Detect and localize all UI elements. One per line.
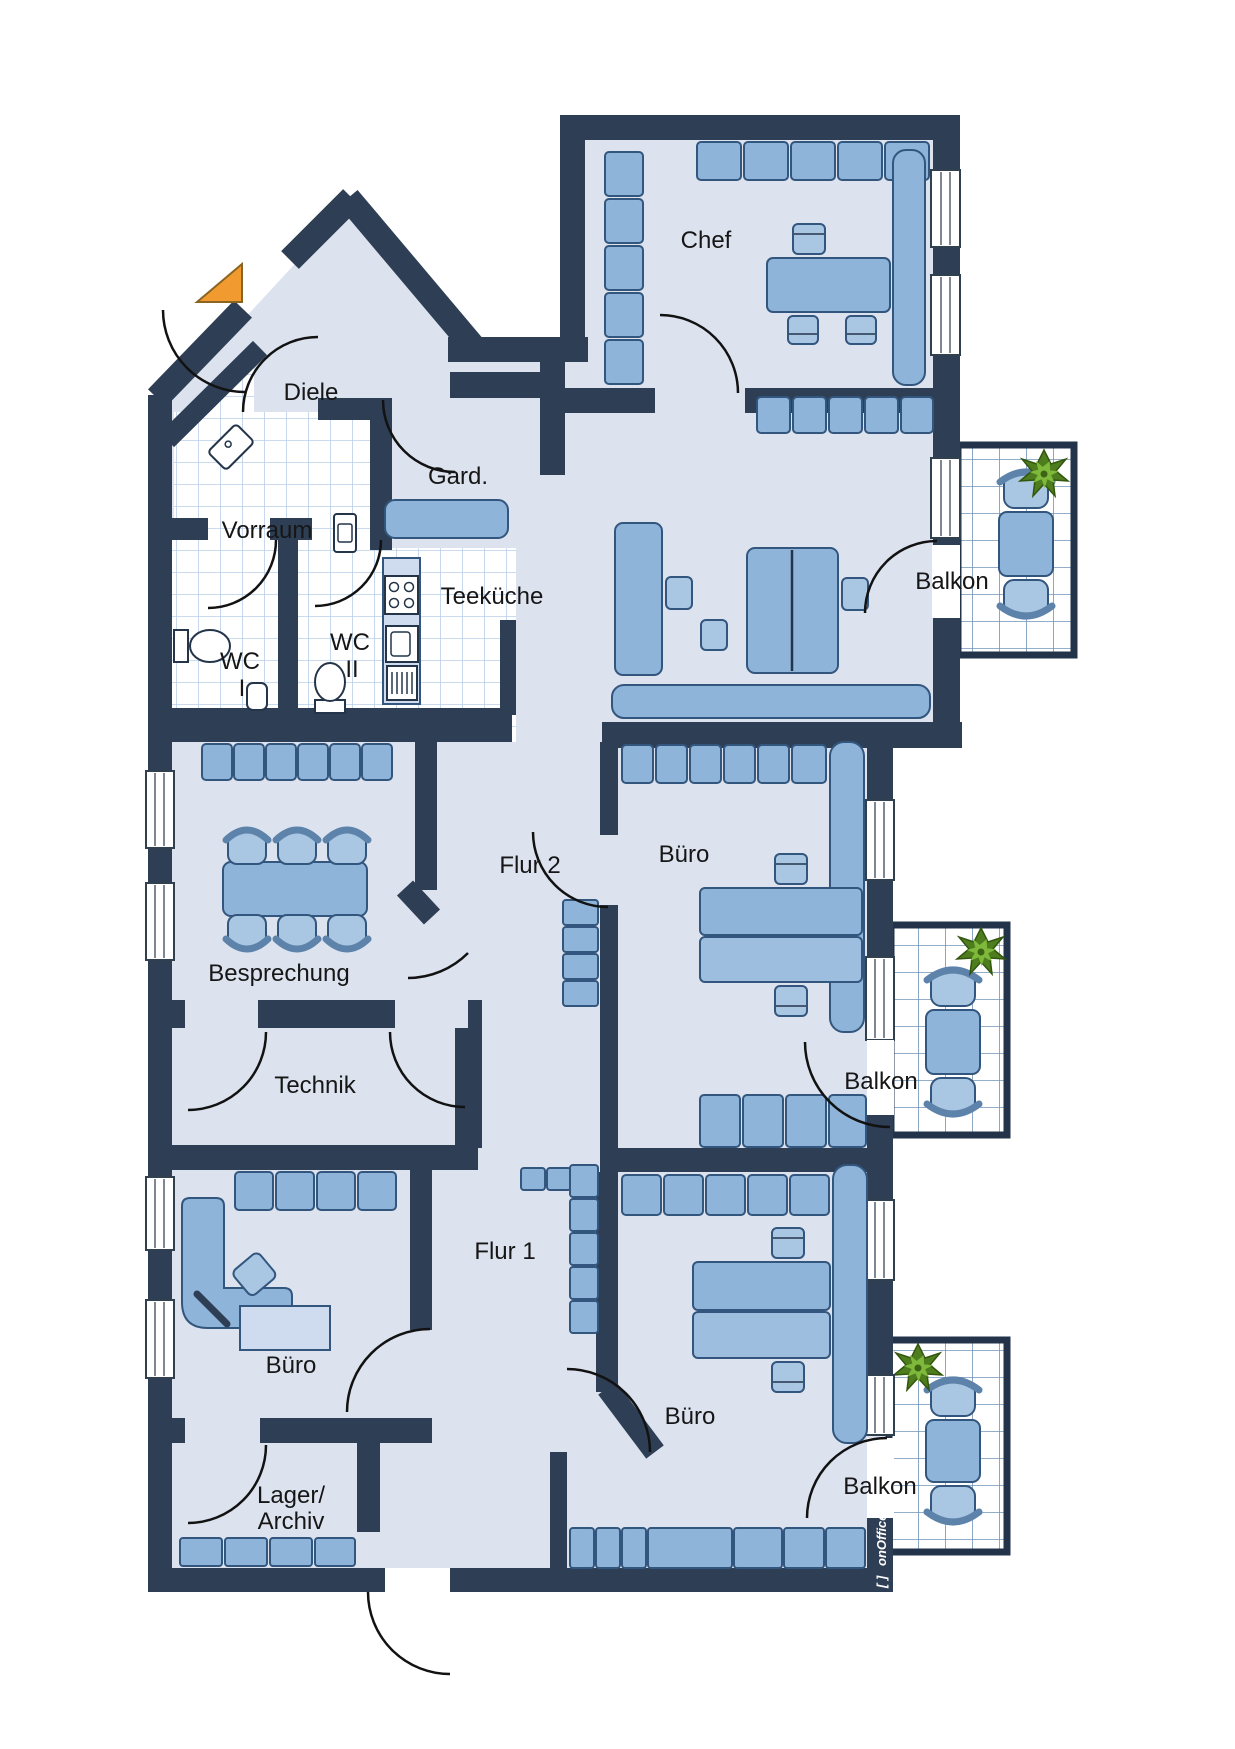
floor-plan: Chef Diele Gard. Vorraum Teeküche WC I W… <box>0 0 1235 1749</box>
desk <box>693 1262 830 1310</box>
chair <box>701 620 727 650</box>
label-buero-mitte: Büro <box>659 841 710 868</box>
sideboard <box>612 685 930 718</box>
label-lager-line1: Lager/ <box>257 1482 325 1509</box>
label-flur2: Flur 2 <box>499 852 560 879</box>
exit-door <box>368 1592 450 1674</box>
desk <box>767 258 890 312</box>
label-buero-links: Büro <box>266 1352 317 1379</box>
onoffice-logo-mark: [ ] <box>874 1575 889 1589</box>
label-wc1-line2: I <box>239 675 246 702</box>
desk <box>615 523 662 675</box>
label-chef: Chef <box>681 227 732 254</box>
cabinet <box>833 1165 867 1443</box>
chair <box>772 1228 804 1258</box>
window <box>931 458 960 538</box>
window <box>866 957 894 1040</box>
window <box>866 1200 894 1280</box>
label-garderobe: Gard. <box>428 463 488 490</box>
exit-door-opening <box>385 1568 450 1592</box>
cabinet <box>893 150 925 385</box>
onoffice-logo-text: onOffice <box>874 1514 889 1567</box>
entrance-arrow-icon <box>197 264 242 302</box>
chair <box>775 854 807 884</box>
dishwasher-icon <box>387 666 417 700</box>
window <box>146 883 174 960</box>
wardrobe <box>385 500 508 538</box>
chair <box>846 316 876 344</box>
onoffice-logo: [ ] onOffice <box>874 1514 889 1590</box>
chair <box>772 1362 804 1392</box>
label-lager-line2: Archiv <box>258 1508 325 1535</box>
chair <box>775 986 807 1016</box>
desk <box>700 937 862 982</box>
toilet-icon <box>315 663 345 713</box>
desk-extension <box>240 1306 330 1350</box>
label-wc1-line1: WC <box>220 648 260 675</box>
label-teekueche: Teeküche <box>441 583 544 610</box>
washbasin-icon <box>334 514 356 552</box>
balcony-bottom <box>889 1340 1007 1552</box>
meeting-table <box>223 862 367 916</box>
balcony-table <box>926 1010 980 1074</box>
label-technik: Technik <box>274 1072 356 1099</box>
window <box>866 800 894 880</box>
label-balkon-mitte: Balkon <box>844 1068 917 1095</box>
balcony-top <box>958 445 1074 655</box>
floor-plan-page: Chef Diele Gard. Vorraum Teeküche WC I W… <box>0 0 1235 1749</box>
chair <box>842 578 868 610</box>
stove-icon <box>385 576 418 614</box>
label-balkon-unten: Balkon <box>843 1473 916 1500</box>
sink-icon <box>386 626 418 662</box>
window <box>146 1300 174 1378</box>
besprechung-furniture <box>202 744 392 949</box>
window <box>146 1177 174 1250</box>
window <box>146 771 174 848</box>
label-buero-rechts: Büro <box>665 1403 716 1430</box>
lager-furniture <box>180 1538 355 1566</box>
chair <box>666 577 692 609</box>
urinal-icon <box>247 683 267 710</box>
label-flur1: Flur 1 <box>474 1238 535 1265</box>
label-wc2-line2: II <box>345 656 358 683</box>
balcony-table <box>999 512 1053 576</box>
balcony-table <box>926 1420 980 1482</box>
label-diele: Diele <box>284 379 339 406</box>
label-wc2-line1: WC <box>330 629 370 656</box>
window <box>931 275 960 355</box>
chair <box>793 224 825 254</box>
label-balkon-oben: Balkon <box>915 568 988 595</box>
label-besprechung: Besprechung <box>208 960 349 987</box>
chair <box>788 316 818 344</box>
window <box>866 1375 894 1435</box>
balcony-middle <box>891 925 1007 1135</box>
label-vorraum: Vorraum <box>222 517 313 544</box>
desk <box>700 888 862 935</box>
window <box>931 170 960 247</box>
desk <box>693 1312 830 1358</box>
